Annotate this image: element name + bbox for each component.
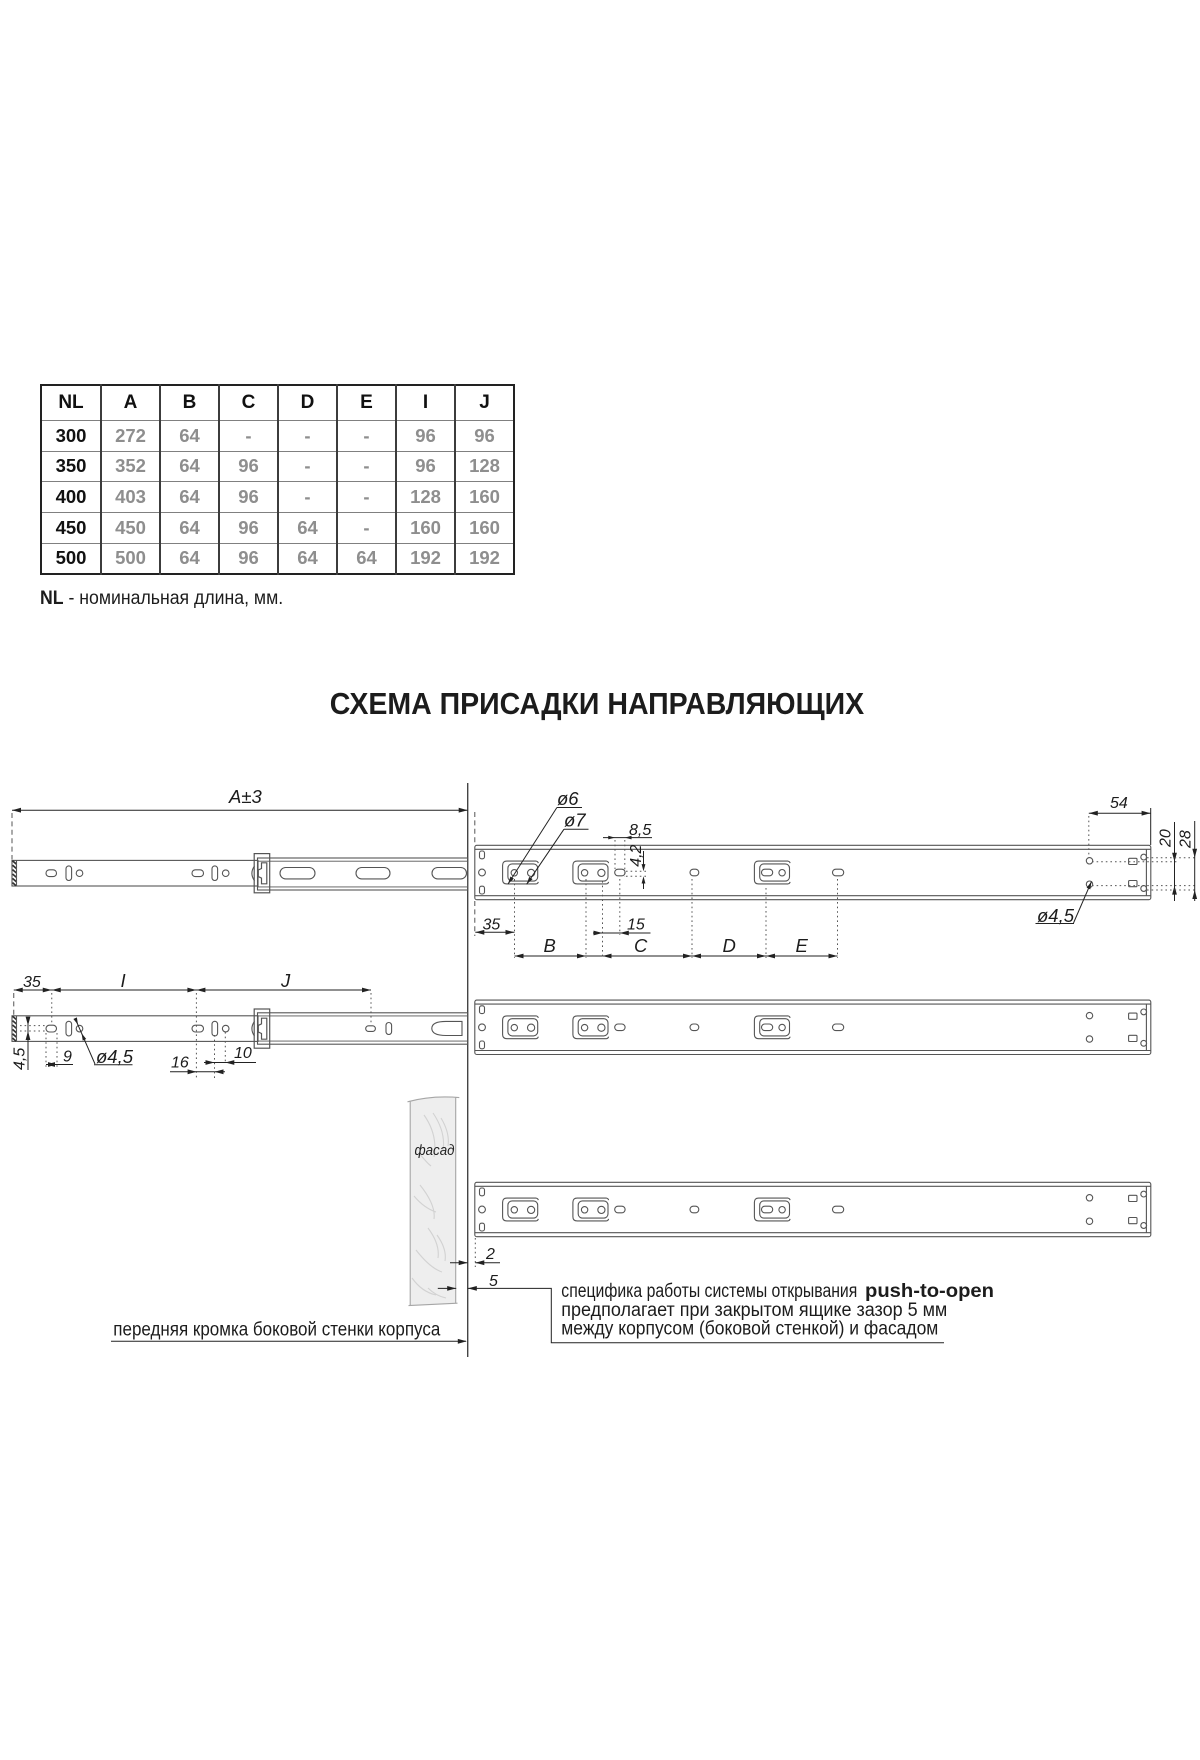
svg-text:E: E	[796, 935, 809, 956]
svg-text:15: 15	[627, 917, 645, 934]
svg-text:8,5: 8,5	[629, 822, 651, 839]
svg-text:B: B	[544, 935, 556, 956]
svg-text:10: 10	[234, 1045, 252, 1062]
svg-text:35: 35	[483, 917, 501, 934]
svg-text:20: 20	[1157, 829, 1174, 848]
svg-text:D: D	[723, 935, 736, 956]
svg-text:J: J	[280, 970, 291, 991]
svg-text:ø7: ø7	[564, 810, 586, 831]
svg-text:4,2: 4,2	[628, 844, 645, 866]
svg-text:ø4,5: ø4,5	[96, 1046, 134, 1067]
svg-text:C: C	[634, 935, 648, 956]
svg-text:16: 16	[171, 1055, 189, 1072]
svg-text:I: I	[121, 970, 126, 991]
svg-text:9: 9	[63, 1049, 72, 1066]
svg-text:2: 2	[485, 1246, 495, 1263]
svg-text:35: 35	[23, 974, 41, 991]
svg-text:A±3: A±3	[228, 786, 263, 807]
svg-text:54: 54	[1110, 795, 1128, 812]
svg-text:передняя кромка боковой стенки: передняя кромка боковой стенки корпуса	[113, 1319, 440, 1340]
svg-text:между корпусом (боковой стенко: между корпусом (боковой стенкой) и фасад…	[561, 1319, 938, 1340]
svg-text:ø4,5: ø4,5	[1037, 905, 1075, 926]
svg-text:4,5: 4,5	[12, 1048, 29, 1070]
svg-text:28: 28	[1177, 830, 1194, 849]
svg-text:ø6: ø6	[557, 788, 579, 809]
svg-text:5: 5	[489, 1273, 498, 1290]
svg-text:фасад: фасад	[415, 1142, 455, 1159]
